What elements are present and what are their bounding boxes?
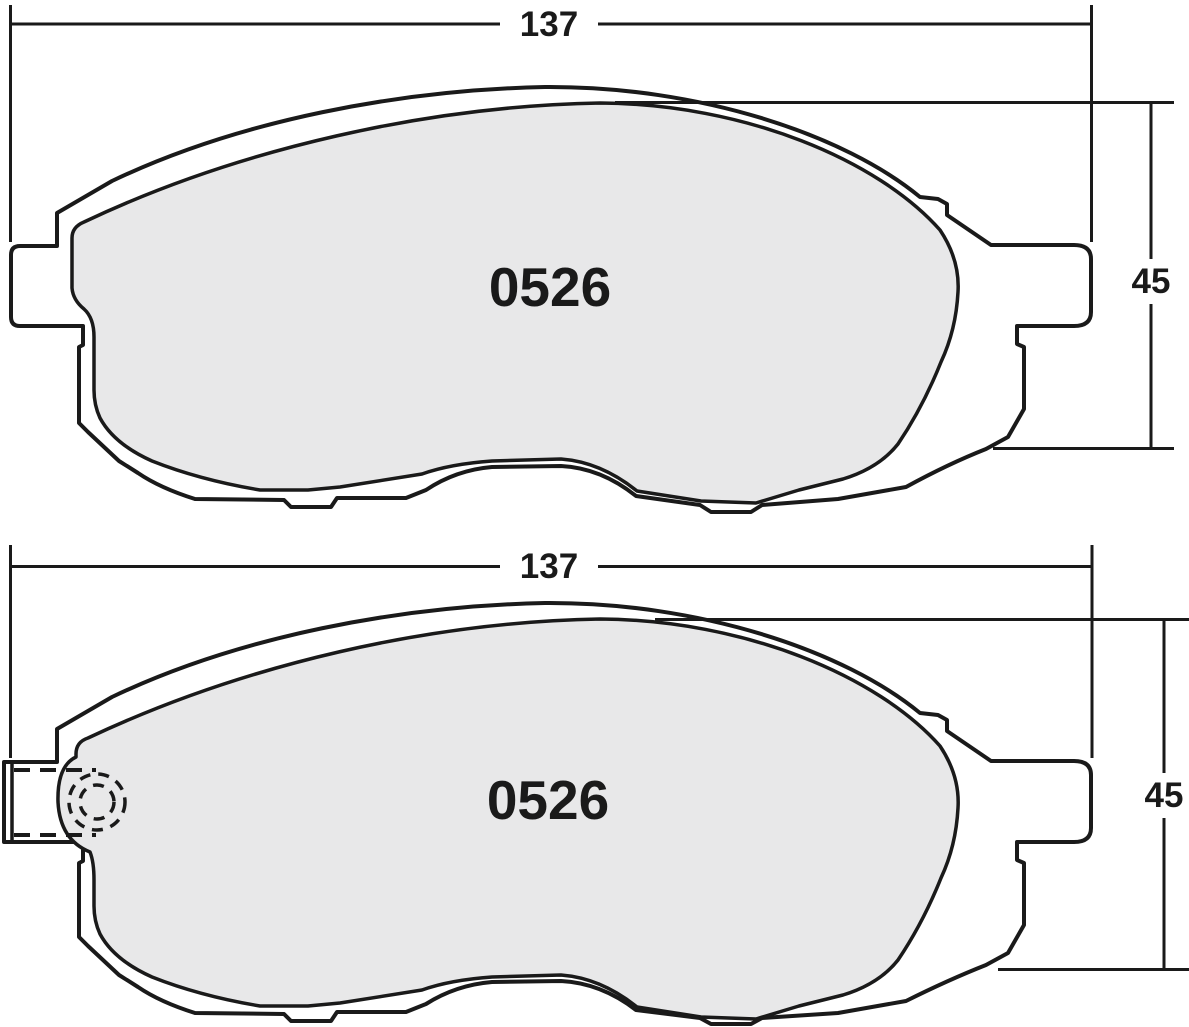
brake-pad-drawing-canvas: 0526 137 45 052: [0, 0, 1189, 1027]
height-dimension-label: 45: [1132, 262, 1171, 301]
pad-view-inner: 0526 137 45: [4, 545, 1189, 1024]
pad-view-outer: 0526 137 45: [11, 5, 1175, 512]
part-number-label: 0526: [487, 769, 609, 831]
width-dimension-label: 137: [520, 547, 578, 586]
part-number-label: 0526: [489, 256, 611, 318]
brake-pad-technical-drawing: 0526 137 45 052: [0, 0, 1189, 1027]
width-dimension-label: 137: [520, 5, 578, 44]
height-dimension-label: 45: [1145, 776, 1184, 815]
